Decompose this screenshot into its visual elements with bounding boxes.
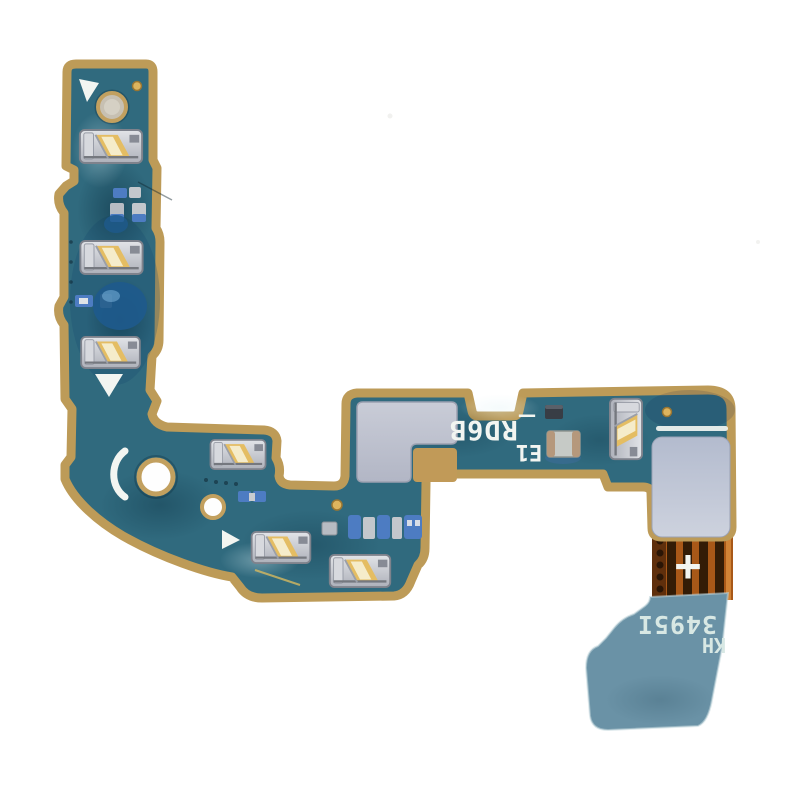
silkscreen-bar [656, 426, 728, 431]
ribbon-trace [715, 532, 724, 600]
glue-blob-dark [93, 282, 147, 330]
ribbon-bright-edge [726, 532, 731, 600]
tail-shading [605, 675, 715, 725]
glue-blob [113, 188, 127, 198]
via [224, 481, 228, 485]
ribbon-hole [657, 586, 664, 593]
capacitor-end [547, 431, 555, 457]
microphone-mesh [104, 99, 120, 115]
spring-contact-7-vertical [610, 399, 642, 459]
ic-chip-top [545, 405, 563, 409]
glue-highlight [407, 520, 412, 526]
dust-speck [756, 240, 760, 244]
glue-blob [377, 515, 390, 539]
via [69, 300, 73, 304]
substrate-notch [413, 448, 457, 482]
via [214, 480, 218, 484]
spring-contact-6 [330, 555, 390, 587]
passive-chip [363, 517, 375, 539]
spring-contact-2 [80, 241, 142, 274]
via [69, 280, 73, 284]
ribbon-hole [657, 550, 664, 557]
via [204, 478, 208, 482]
fiducial-dot [663, 408, 672, 417]
adhesive-pad [652, 437, 730, 537]
glue-blob [348, 515, 361, 539]
mounting-hole-large [139, 460, 173, 494]
glue-highlight [415, 520, 420, 526]
pcb-photo-canvas: + 3495I KH [0, 0, 800, 800]
glue-highlight [102, 290, 120, 302]
via [234, 482, 238, 486]
ribbon-hole [657, 562, 664, 569]
via [69, 240, 73, 244]
passive-chip [79, 298, 88, 304]
passive-chip [249, 493, 255, 501]
spring-contact-3 [81, 337, 140, 368]
mask-tint [645, 390, 735, 430]
fiducial-dot [332, 500, 342, 510]
via [69, 260, 73, 264]
product-photo: + 3495I KH [0, 0, 800, 800]
ribbon-hole [657, 574, 664, 581]
passive-chip [392, 517, 402, 539]
glue-blob [132, 214, 146, 222]
glue-blob-dark [104, 215, 128, 233]
spring-contact-1 [80, 130, 142, 163]
flex-ribbon: + [652, 532, 733, 600]
passive-chip [129, 187, 141, 198]
tail-code-label: KH [702, 633, 726, 657]
polarity-plus-mark: + [675, 541, 702, 592]
mounting-hole-small [202, 496, 224, 518]
glue-blob [404, 515, 422, 539]
spring-contact-4 [210, 440, 265, 469]
dust-speck [388, 114, 393, 119]
fiducial-dot [133, 82, 142, 91]
spring-contact-5 [252, 532, 311, 563]
board-rev-label: E1 [516, 439, 543, 464]
passive-chip [322, 522, 337, 535]
capacitor-end [572, 431, 580, 457]
